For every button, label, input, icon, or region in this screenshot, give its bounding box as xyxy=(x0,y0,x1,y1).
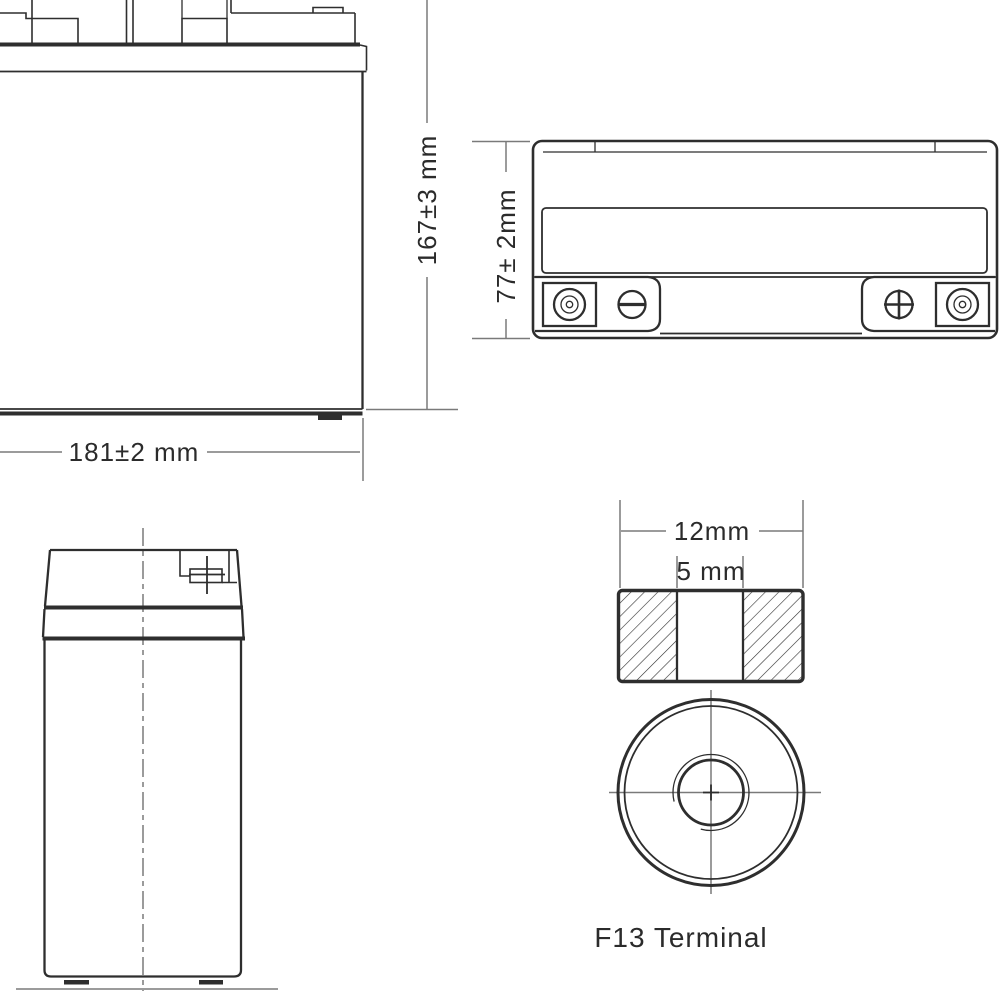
dim-front-height: 167±3 mm xyxy=(366,0,458,410)
front-foot-mark xyxy=(318,416,342,421)
side-foot-mark xyxy=(199,980,223,985)
terminal-platform-right xyxy=(862,277,995,331)
dim-terminal-outer-label: 12mm xyxy=(674,516,750,546)
dim-front-height-label: 167±3 mm xyxy=(412,135,442,266)
dim-terminal-hole-label: 5 mm xyxy=(677,556,746,586)
side-foot-mark xyxy=(64,980,89,985)
screw-slot-icon xyxy=(619,291,646,318)
top-view-label-recess xyxy=(542,208,987,273)
side-view xyxy=(16,528,278,991)
dim-front-width-label: 181±2 mm xyxy=(69,437,200,467)
terminal-circular-view xyxy=(609,690,821,894)
top-view-outline xyxy=(533,141,997,338)
dim-front-width: 181±2 mm xyxy=(0,418,363,481)
battery-dimension-drawing: 181±2 mm 167±3 mm xyxy=(0,0,1000,1000)
hatch-right xyxy=(743,592,802,681)
terminal-title: F13 Terminal xyxy=(594,922,767,953)
hatch-left xyxy=(620,592,677,681)
screw-cross-icon xyxy=(884,290,914,320)
plus-terminal-cross-icon xyxy=(189,556,225,594)
dim-top-depth-label: 77± 2mm xyxy=(491,188,521,303)
terminal-hole-edges xyxy=(677,591,743,681)
front-lid-lip xyxy=(360,45,367,71)
front-view-terminals xyxy=(0,0,355,44)
center-mark-icon xyxy=(703,785,719,801)
terminal-post-left xyxy=(543,283,596,326)
terminal-section-view: 12mm 5 mm xyxy=(619,500,804,682)
dim-top-depth: 77± 2mm xyxy=(472,142,530,339)
side-terminal-detail xyxy=(180,550,237,594)
top-view xyxy=(533,141,997,338)
terminal-post-right xyxy=(936,283,989,326)
vent-cap-bump xyxy=(313,8,343,14)
dim-terminal-hole: 5 mm xyxy=(677,556,746,588)
front-view xyxy=(0,0,367,420)
